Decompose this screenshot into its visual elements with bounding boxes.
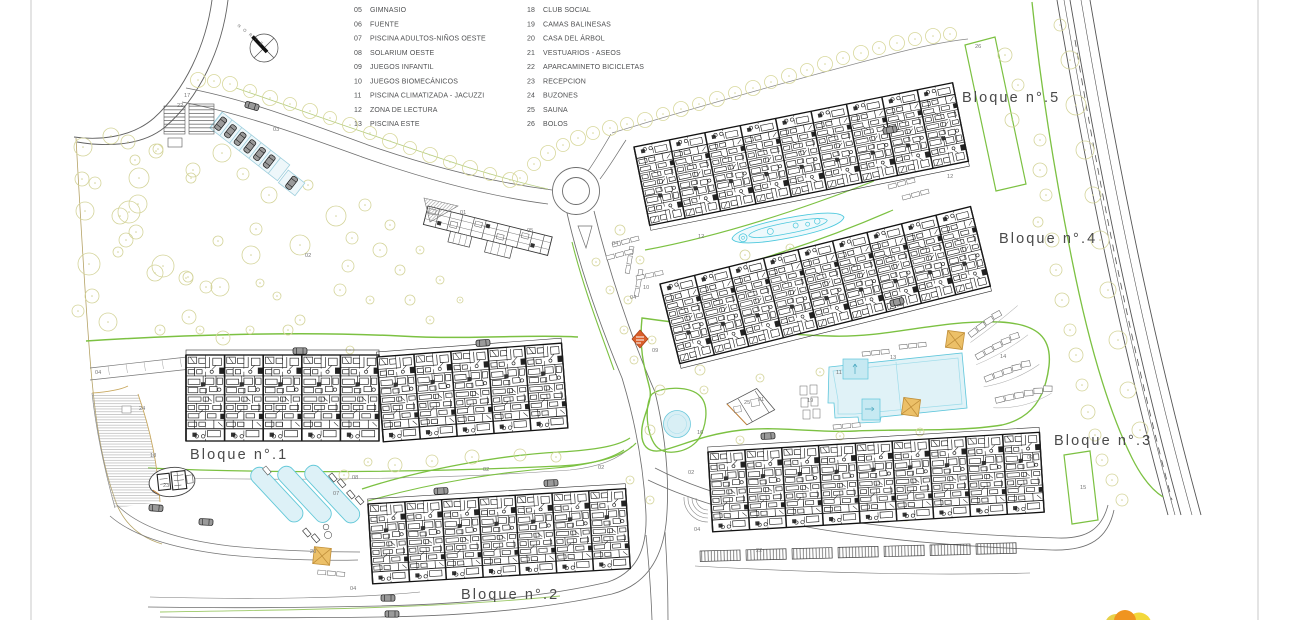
svg-text:CASA DEL ÁRBOL: CASA DEL ÁRBOL: [543, 34, 605, 43]
svg-text:19: 19: [807, 398, 813, 404]
svg-text:07: 07: [333, 491, 339, 497]
svg-text:26: 26: [975, 44, 981, 50]
svg-text:25: 25: [744, 400, 750, 406]
svg-text:18: 18: [527, 7, 535, 14]
svg-text:23: 23: [527, 79, 535, 86]
svg-text:17: 17: [184, 93, 190, 99]
svg-text:26: 26: [527, 121, 535, 128]
svg-text:11: 11: [354, 93, 362, 100]
svg-text:04: 04: [612, 241, 618, 247]
svg-text:12: 12: [354, 107, 362, 114]
svg-text:12: 12: [947, 174, 953, 180]
svg-text:18: 18: [150, 453, 156, 459]
svg-text:20: 20: [527, 36, 535, 43]
svg-text:Bloque n°.1: Bloque n°.1: [190, 447, 288, 463]
svg-text:04: 04: [350, 586, 356, 592]
svg-text:06: 06: [354, 21, 362, 28]
svg-text:22: 22: [527, 64, 535, 71]
svg-text:16: 16: [697, 430, 703, 436]
svg-text:11: 11: [836, 370, 842, 376]
svg-text:04: 04: [630, 295, 636, 301]
svg-text:VESTUARIOS - ASEOS: VESTUARIOS - ASEOS: [543, 50, 621, 57]
svg-text:09: 09: [652, 348, 658, 354]
svg-text:13: 13: [354, 121, 362, 128]
svg-text:14: 14: [1000, 354, 1006, 360]
svg-text:SAUNA: SAUNA: [543, 107, 568, 114]
svg-text:BUZONES: BUZONES: [543, 93, 578, 100]
svg-text:ZONA DE LECTURA: ZONA DE LECTURA: [370, 107, 438, 114]
svg-text:24: 24: [139, 406, 145, 412]
svg-text:02: 02: [688, 470, 694, 476]
svg-text:Bloque n°.4: Bloque n°.4: [999, 231, 1097, 247]
svg-text:RECEPCION: RECEPCION: [543, 79, 586, 86]
svg-text:JUEGOS BIOMECÁNICOS: JUEGOS BIOMECÁNICOS: [370, 77, 458, 86]
svg-text:21: 21: [527, 50, 535, 57]
svg-text:21: 21: [758, 397, 764, 403]
svg-text:CLUB SOCIAL: CLUB SOCIAL: [543, 7, 591, 14]
svg-text:03: 03: [273, 127, 279, 133]
svg-text:25: 25: [527, 107, 535, 114]
svg-text:23: 23: [163, 483, 169, 489]
svg-text:04: 04: [694, 527, 700, 533]
svg-text:Bloque n°.3: Bloque n°.3: [1054, 433, 1152, 449]
svg-text:20: 20: [310, 549, 316, 555]
svg-text:22: 22: [756, 548, 762, 554]
svg-text:22: 22: [177, 103, 183, 109]
svg-text:19: 19: [527, 21, 535, 28]
svg-text:01: 01: [460, 210, 466, 216]
svg-text:08: 08: [354, 50, 362, 57]
svg-text:10: 10: [643, 285, 649, 291]
svg-text:GIMNASIO: GIMNASIO: [370, 7, 407, 14]
svg-text:APARCAMINETO BICICLETAS: APARCAMINETO BICICLETAS: [543, 64, 644, 71]
svg-text:10: 10: [354, 79, 362, 86]
svg-text:FUENTE: FUENTE: [370, 21, 399, 28]
svg-text:PISCINA ESTE: PISCINA ESTE: [370, 121, 420, 128]
svg-text:JUEGOS INFANTIL: JUEGOS INFANTIL: [370, 64, 434, 71]
svg-text:13: 13: [890, 355, 896, 361]
svg-text:Bloque n°.5: Bloque n°.5: [962, 90, 1060, 106]
svg-text:BOLOS: BOLOS: [543, 121, 568, 128]
svg-text:02: 02: [598, 465, 604, 471]
svg-text:09: 09: [354, 64, 362, 71]
svg-text:CAMAS BALINESAS: CAMAS BALINESAS: [543, 21, 611, 28]
svg-text:SOLARIUM OESTE: SOLARIUM OESTE: [370, 50, 435, 57]
svg-text:05: 05: [354, 7, 362, 14]
svg-text:04: 04: [95, 370, 101, 376]
svg-text:24: 24: [527, 93, 535, 100]
svg-text:Bloque n°.2: Bloque n°.2: [461, 587, 559, 603]
svg-text:PISCINA ADULTOS-NIÑOS OESTE: PISCINA ADULTOS-NIÑOS OESTE: [370, 34, 486, 43]
svg-text:07: 07: [354, 36, 362, 43]
svg-text:02: 02: [483, 467, 489, 473]
svg-text:15: 15: [1080, 485, 1086, 491]
svg-text:02: 02: [305, 253, 311, 259]
svg-text:02: 02: [1027, 455, 1033, 461]
svg-text:PISCINA CLIMATIZADA - JACUZZI: PISCINA CLIMATIZADA - JACUZZI: [370, 93, 484, 100]
svg-text:08: 08: [352, 475, 358, 481]
svg-text:12: 12: [698, 234, 704, 240]
svg-text:05: 05: [527, 228, 533, 234]
